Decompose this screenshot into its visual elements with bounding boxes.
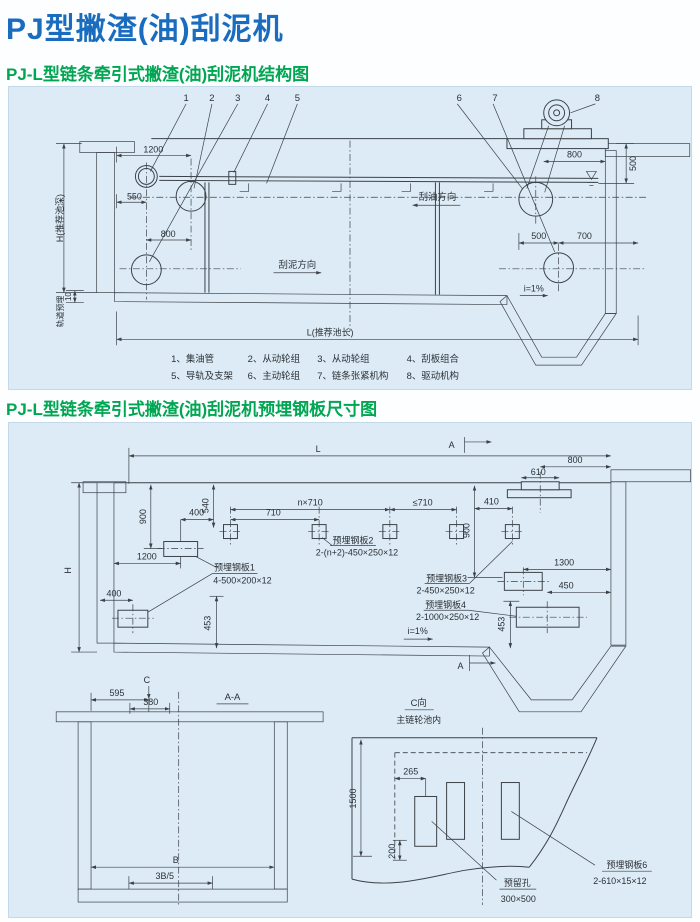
dim-400b: 400	[106, 588, 121, 598]
dim-200: 200	[387, 844, 397, 859]
dim-595: 595	[109, 688, 124, 698]
plate4-spec: 2-1000×250×12	[416, 612, 479, 622]
plate6-name: 预埋钢板6	[606, 859, 647, 870]
dim-3B5: 3B/5	[156, 871, 174, 881]
dim-n710: n×710	[298, 498, 323, 508]
dim-265: 265	[403, 767, 418, 777]
dim-900a: 900	[138, 509, 148, 524]
callout-6: 6	[457, 92, 462, 103]
dim-453b: 453	[496, 617, 506, 632]
section1-heading: PJ-L型链条牵引式撇渣(油)刮泥机结构图	[6, 60, 309, 85]
plate1-lower	[112, 604, 154, 633]
label-oil-direction: 刮油方向	[419, 191, 457, 202]
legend-item-3: 3、从动轮组	[317, 353, 370, 364]
plate2-spec: 2-(n+2)-450×250×12	[316, 547, 398, 557]
centerlines	[120, 141, 649, 332]
view-c-title: C向	[411, 697, 427, 709]
dim-453a: 453	[203, 616, 213, 631]
legend-item-6: 6、主动轮组	[248, 370, 301, 381]
dim-1500: 1500	[348, 789, 358, 809]
callout-4: 4	[265, 92, 270, 103]
pool-structure	[80, 139, 690, 366]
hole-spec: 300×500	[501, 894, 536, 904]
plate2-name: 预埋钢板2	[333, 535, 374, 546]
plate4-rect	[509, 601, 587, 633]
dim-710: 710	[266, 508, 281, 518]
plate1-upper	[158, 542, 204, 557]
callout-8: 8	[595, 92, 600, 103]
label-rail-note: 轨道预埋	[55, 296, 65, 328]
dim-900b: 900	[462, 523, 472, 538]
structure-diagram: 1 2 3 4 5 6 7 8 1200 550 800 800 500 500…	[9, 87, 691, 389]
section-a-bottom: A	[458, 661, 464, 671]
dim-le710: ≤710	[413, 498, 433, 508]
legend-item-7: 7、链条张紧机构	[317, 370, 388, 381]
section-aa-title: A-A	[225, 692, 241, 703]
plate-dimension-diagram: L A A H	[9, 423, 691, 917]
dim-800-top: 800	[567, 150, 582, 160]
plate6-spec: 2-610×15×12	[593, 876, 646, 886]
dimension-lines	[56, 144, 638, 346]
hole-name: 预留孔	[504, 877, 531, 888]
view-c-subtitle: 主链轮池内	[396, 714, 441, 725]
dim-500-bottom: 500	[531, 231, 546, 241]
callout-3: 3	[235, 92, 240, 103]
dim-550: 550	[127, 191, 142, 201]
dim-700-bottom: 700	[577, 231, 592, 241]
legend-item-1: 1、集油管	[171, 353, 214, 364]
dim-1300: 1300	[554, 557, 574, 567]
dim-800-left: 800	[161, 229, 176, 239]
direction-arrows	[274, 205, 548, 295]
legend-item-2: 2、从动轮组	[248, 353, 301, 364]
label-mud-direction: 刮泥方向	[279, 259, 317, 270]
dim-H: H	[63, 567, 73, 573]
callout-5: 5	[295, 92, 300, 103]
label-pool-length: L(推荐池长)	[307, 326, 354, 337]
legend-item-4: 4、刮板组合	[407, 353, 460, 364]
legend-item-5: 5、导轨及支架	[171, 370, 233, 381]
callout-2: 2	[209, 92, 214, 103]
plate3-name: 预埋钢板3	[426, 572, 467, 583]
dim-500-right: 500	[628, 156, 638, 171]
label-slope-1: i=1%	[524, 284, 544, 294]
plate1-spec: 4-500×200×12	[213, 575, 271, 585]
dim-B: B	[173, 855, 179, 865]
label-slope-2: i=1%	[408, 626, 428, 636]
structure-diagram-panel: 1 2 3 4 5 6 7 8 1200 550 800 800 500 500…	[8, 86, 692, 390]
plate-dimension-panel: L A A H	[8, 422, 692, 918]
dim-800: 800	[568, 455, 583, 465]
page-title: PJ型撇渣(油)刮泥机	[6, 4, 284, 48]
dim-610: 610	[531, 467, 546, 477]
wheel-sets	[131, 165, 573, 284]
plate3-spec: 2-450×250×12	[416, 585, 474, 595]
dim-L: L	[316, 444, 321, 454]
pool-structure-2	[83, 470, 691, 712]
label-pool-depth: H(推荐池深)	[54, 194, 65, 242]
dim-450: 450	[559, 580, 574, 590]
legend-item-8: 8、驱动机构	[407, 370, 459, 381]
callout-1: 1	[183, 92, 188, 103]
dim-410: 410	[484, 497, 499, 507]
plate3-rect	[497, 567, 549, 595]
callout-7: 7	[492, 92, 497, 103]
section2-heading: PJ-L型链条牵引式撇渣(油)刮泥机预埋钢板尺寸图	[6, 395, 377, 420]
plate1-name: 预埋钢板1	[214, 561, 255, 572]
dim-380: 380	[143, 697, 158, 707]
section-aa	[56, 686, 323, 907]
dim-400a: 400	[189, 508, 204, 518]
section-a-top: A	[449, 440, 455, 450]
dim-10: 10	[64, 292, 73, 301]
dim-1200-2: 1200	[137, 551, 157, 561]
plate4-name: 预埋钢板4	[425, 599, 466, 610]
section-c-marker: C	[144, 675, 151, 685]
legend: 1、集油管 2、从动轮组 3、从动轮组 4、刮板组合 5、导轨及支架 6、主动轮…	[171, 353, 459, 381]
dim-1200: 1200	[143, 145, 163, 155]
